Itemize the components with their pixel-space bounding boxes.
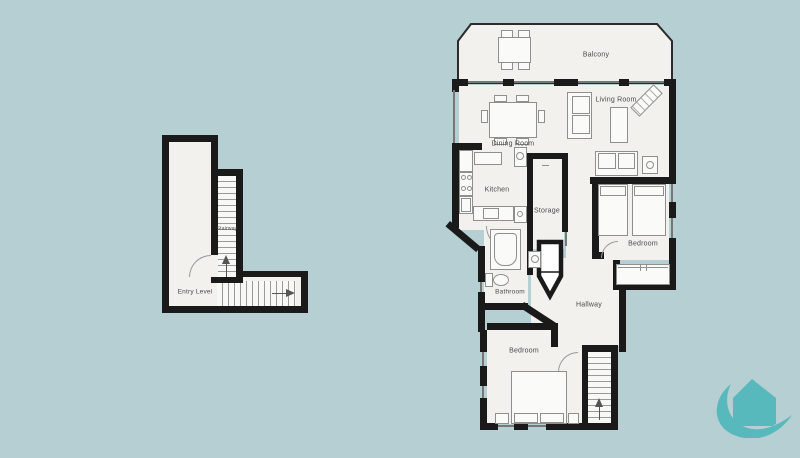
burner xyxy=(461,175,466,180)
wall xyxy=(514,423,528,430)
hallway-label: Hallway xyxy=(576,302,602,309)
storage-label: Storage xyxy=(534,208,560,215)
wall xyxy=(480,423,498,430)
refrigerator-inner xyxy=(461,198,471,212)
kitchen-sink xyxy=(483,208,499,219)
kitchen-unit-dial xyxy=(516,152,524,160)
kitchen-counter xyxy=(459,150,473,172)
balcony-outline xyxy=(455,21,675,85)
door-opening xyxy=(211,255,218,277)
bedroom-right-label: Bedroom xyxy=(628,241,658,248)
up-arrow-stem xyxy=(599,406,600,420)
dining-room-label: Dining Room xyxy=(492,141,535,148)
right-arrow-icon xyxy=(286,289,295,297)
wall xyxy=(611,345,618,430)
floorplan-canvas: Stairway Entry Level xyxy=(0,0,800,458)
right-arrow-stem xyxy=(272,293,287,294)
dining-chair xyxy=(494,95,507,102)
coffee-table xyxy=(610,107,628,143)
wall xyxy=(162,135,169,313)
bathtub-inner xyxy=(494,233,517,266)
nightstand xyxy=(568,413,579,424)
nightstand xyxy=(495,413,509,424)
wardrobe-mark xyxy=(646,264,647,271)
wall xyxy=(554,79,578,86)
burner xyxy=(467,175,472,180)
burner xyxy=(461,186,466,191)
house-wave-logo-icon xyxy=(714,376,794,438)
wall xyxy=(669,79,676,178)
toilet-tank xyxy=(485,273,493,287)
sofa-cushion xyxy=(572,96,590,114)
dining-chair xyxy=(516,95,529,102)
wall xyxy=(452,143,459,228)
wardrobe-rail xyxy=(618,267,668,268)
wall xyxy=(619,288,626,352)
wall xyxy=(551,323,558,347)
wall xyxy=(211,135,218,255)
wall xyxy=(590,177,676,184)
wall xyxy=(582,345,588,430)
stairway-label: Stairway xyxy=(217,226,238,232)
up-arrow-stem xyxy=(226,263,227,277)
balcony-chair xyxy=(501,62,513,70)
storage-floor xyxy=(531,159,564,249)
bathroom-label: Bathroom xyxy=(495,289,525,296)
window xyxy=(453,90,455,145)
loveseat-cushion xyxy=(598,153,616,169)
wall xyxy=(162,306,308,313)
shaft-outline xyxy=(534,239,566,301)
window xyxy=(498,425,514,427)
pillow xyxy=(540,413,564,423)
wall xyxy=(619,79,629,86)
wall xyxy=(162,135,218,142)
loveseat-cushion xyxy=(618,153,635,169)
sideboard xyxy=(474,152,502,165)
wall xyxy=(211,277,243,283)
pillow xyxy=(600,186,626,196)
window xyxy=(528,425,546,427)
closet-mark xyxy=(542,165,549,166)
bathroom-basin xyxy=(531,255,539,263)
wall xyxy=(487,323,557,330)
wardrobe-mark xyxy=(640,264,641,271)
wall xyxy=(669,202,676,218)
wall xyxy=(478,246,485,282)
dining-chair xyxy=(481,110,488,123)
balcony-table xyxy=(498,37,531,63)
wall xyxy=(480,366,487,386)
wall xyxy=(478,292,485,332)
bedroom-lower-label: Bedroom xyxy=(509,348,539,355)
dining-table xyxy=(489,102,537,138)
wall xyxy=(503,79,514,86)
wall xyxy=(480,330,487,352)
pillow xyxy=(514,413,538,423)
corridor-floor xyxy=(566,155,594,258)
living-room-label: Living Room xyxy=(595,97,636,104)
balcony-chair xyxy=(518,62,530,70)
kitchen-label: Kitchen xyxy=(485,187,510,194)
dishwasher-dial xyxy=(517,211,523,217)
entry-level-label: Entry Level xyxy=(178,289,213,296)
toilet-bowl xyxy=(493,274,509,286)
wall xyxy=(562,153,568,232)
wall xyxy=(236,169,243,277)
balcony-label: Balcony xyxy=(583,52,609,59)
sofa-cushion xyxy=(572,115,590,134)
burner xyxy=(467,186,472,191)
pillow xyxy=(634,186,664,196)
wall xyxy=(236,271,308,277)
dining-chair xyxy=(538,110,545,123)
window xyxy=(671,218,673,240)
table-lamp xyxy=(646,161,654,169)
